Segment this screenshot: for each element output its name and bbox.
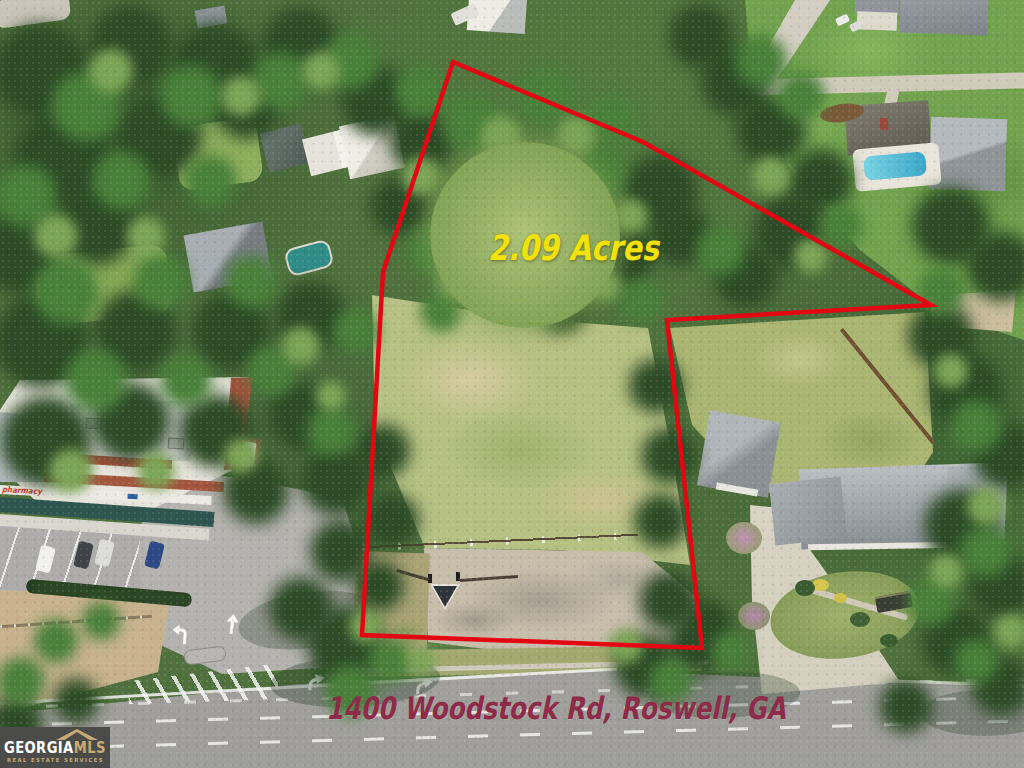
- pink-tree-1: [726, 522, 762, 554]
- logo-brand-mls: MLS: [74, 738, 106, 757]
- left-house-roof: [184, 221, 273, 292]
- right-house-left-wing: [769, 476, 847, 545]
- pink-tree-2: [738, 602, 770, 630]
- pool-house-chimney: [880, 118, 889, 131]
- logo-brand-text: GEORGIAMLS: [4, 738, 106, 757]
- bed-shrub-1: [795, 580, 815, 596]
- logo-tagline: REAL ESTATE SERVICES: [7, 757, 104, 763]
- hvac-unit-2: [112, 412, 129, 424]
- hvac-unit-3: [140, 415, 157, 427]
- tr-house-1-walls: [857, 11, 898, 30]
- left-lawn-patch-2: [33, 243, 174, 327]
- entrance-fence-post-1: [428, 574, 432, 583]
- bed-shrub-3: [880, 634, 898, 647]
- aerial-photo: pharmacy: [0, 0, 1024, 768]
- hvac-unit-4: [168, 438, 185, 450]
- facade-blue-sign: [127, 494, 137, 500]
- right-house-porch: [808, 542, 960, 551]
- tr-house-2-roof: [899, 0, 988, 36]
- top-left-gray-roof: [195, 6, 228, 29]
- left-house-pool: [283, 239, 335, 278]
- yellow-bush-2: [834, 593, 847, 603]
- top-left-road-stub: [0, 0, 72, 29]
- logo-brand-georgia: GEORGIA: [4, 738, 74, 757]
- bed-shrub-2: [850, 612, 870, 627]
- pharmacy-sign-text: pharmacy: [2, 485, 42, 496]
- acreage-label: 2.09 Acres: [488, 228, 659, 268]
- georgia-mls-logo: GEORGIAMLS REAL ESTATE SERVICES: [0, 727, 110, 768]
- address-label: 1400 Woodstock Rd, Roswell, GA: [326, 690, 786, 726]
- top-center-white-house: [467, 0, 528, 34]
- left-lawn-patch-1: [172, 116, 264, 191]
- teal-roof-house: [260, 124, 310, 173]
- hvac-unit-1: [86, 418, 103, 430]
- sideroad-arrow-left-turn: [171, 623, 189, 648]
- right-house-right-wing: [944, 466, 1008, 539]
- tree-canopy-light: [0, 0, 2, 2]
- entrance-fence-post-2: [456, 572, 460, 581]
- white-barn: [339, 115, 405, 179]
